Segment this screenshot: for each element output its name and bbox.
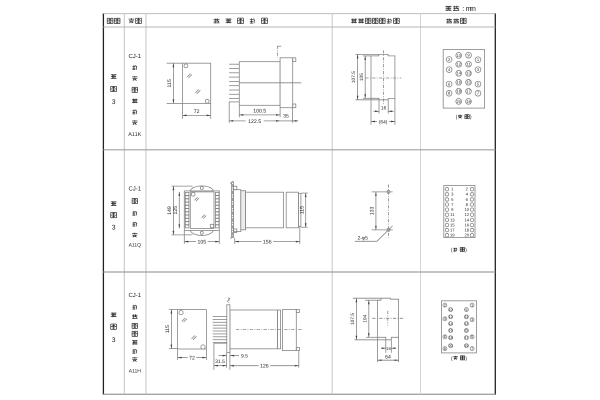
svg-text:10: 10 bbox=[449, 308, 453, 312]
svg-text:72: 72 bbox=[194, 109, 200, 115]
svg-text:3: 3 bbox=[112, 337, 116, 344]
svg-text:17: 17 bbox=[466, 89, 471, 94]
svg-text:11: 11 bbox=[465, 315, 469, 319]
svg-text:104: 104 bbox=[362, 314, 368, 322]
svg-text:16: 16 bbox=[386, 346, 391, 351]
svg-text:8: 8 bbox=[444, 347, 446, 351]
svg-text:3: 3 bbox=[112, 225, 116, 232]
svg-text:18: 18 bbox=[449, 336, 453, 340]
svg-text:156: 156 bbox=[263, 239, 272, 245]
svg-text:A11K: A11K bbox=[128, 132, 141, 138]
svg-text:(: ( bbox=[451, 247, 453, 253]
svg-text:12: 12 bbox=[449, 315, 453, 319]
svg-text:): ) bbox=[465, 247, 467, 253]
svg-text:7: 7 bbox=[471, 347, 473, 351]
svg-text:CJ-1: CJ-1 bbox=[128, 186, 141, 193]
svg-text:19: 19 bbox=[464, 344, 468, 348]
svg-text:20: 20 bbox=[449, 344, 453, 348]
svg-text:2-φ5: 2-φ5 bbox=[357, 236, 368, 242]
svg-text:20: 20 bbox=[456, 99, 461, 104]
svg-text:3: 3 bbox=[471, 318, 473, 322]
svg-text:16: 16 bbox=[381, 106, 387, 112]
svg-text:18: 18 bbox=[456, 89, 461, 94]
svg-text:CJ-1: CJ-1 bbox=[128, 53, 141, 60]
svg-text:5: 5 bbox=[471, 335, 473, 339]
svg-text:10: 10 bbox=[456, 53, 461, 58]
svg-text:16: 16 bbox=[456, 80, 461, 85]
svg-text:(: ( bbox=[451, 356, 453, 362]
svg-text:m: m bbox=[470, 4, 476, 13]
svg-text:19: 19 bbox=[450, 233, 455, 238]
svg-text:15: 15 bbox=[466, 80, 471, 85]
svg-text:133: 133 bbox=[370, 206, 376, 215]
svg-text:A11Q: A11Q bbox=[129, 243, 142, 249]
svg-text:115: 115 bbox=[167, 79, 173, 87]
svg-text:64: 64 bbox=[385, 354, 391, 360]
svg-text:13: 13 bbox=[464, 322, 468, 326]
svg-text:107.5: 107.5 bbox=[350, 313, 356, 325]
svg-text:(64): (64) bbox=[379, 119, 388, 125]
svg-text::: : bbox=[462, 4, 464, 13]
svg-text:2: 2 bbox=[444, 303, 446, 307]
svg-text:100.5: 100.5 bbox=[253, 109, 266, 115]
svg-text:3: 3 bbox=[112, 99, 116, 106]
svg-text:16: 16 bbox=[449, 329, 453, 333]
svg-text:31.5: 31.5 bbox=[215, 359, 225, 365]
svg-text:115: 115 bbox=[165, 325, 171, 333]
svg-text:13: 13 bbox=[466, 71, 471, 76]
svg-text:): ) bbox=[465, 356, 467, 362]
svg-text:107.5: 107.5 bbox=[351, 71, 357, 83]
svg-text:9.5: 9.5 bbox=[241, 354, 248, 360]
svg-text:19: 19 bbox=[466, 99, 471, 104]
svg-text:126: 126 bbox=[260, 364, 269, 370]
svg-text:CJ-1: CJ-1 bbox=[128, 292, 141, 299]
svg-text:20: 20 bbox=[464, 233, 469, 238]
svg-text:12: 12 bbox=[456, 62, 461, 67]
svg-text:17: 17 bbox=[464, 336, 468, 340]
svg-text:35: 35 bbox=[283, 114, 289, 120]
svg-text:125: 125 bbox=[173, 206, 179, 215]
svg-text:105: 105 bbox=[197, 239, 206, 245]
svg-text:115: 115 bbox=[300, 206, 306, 214]
svg-text:72: 72 bbox=[189, 355, 195, 361]
svg-text:105: 105 bbox=[359, 73, 365, 81]
svg-text:122.5: 122.5 bbox=[248, 119, 261, 125]
svg-text:9: 9 bbox=[465, 308, 467, 312]
svg-text:14: 14 bbox=[449, 322, 453, 326]
svg-text:4: 4 bbox=[444, 317, 446, 321]
svg-text:A11H: A11H bbox=[129, 369, 142, 375]
svg-text:14: 14 bbox=[456, 71, 461, 76]
svg-text:): ) bbox=[470, 115, 472, 121]
svg-text:15: 15 bbox=[464, 329, 468, 333]
svg-text:1: 1 bbox=[471, 303, 473, 307]
svg-text:6: 6 bbox=[444, 335, 446, 339]
svg-text:(: ( bbox=[456, 115, 458, 121]
